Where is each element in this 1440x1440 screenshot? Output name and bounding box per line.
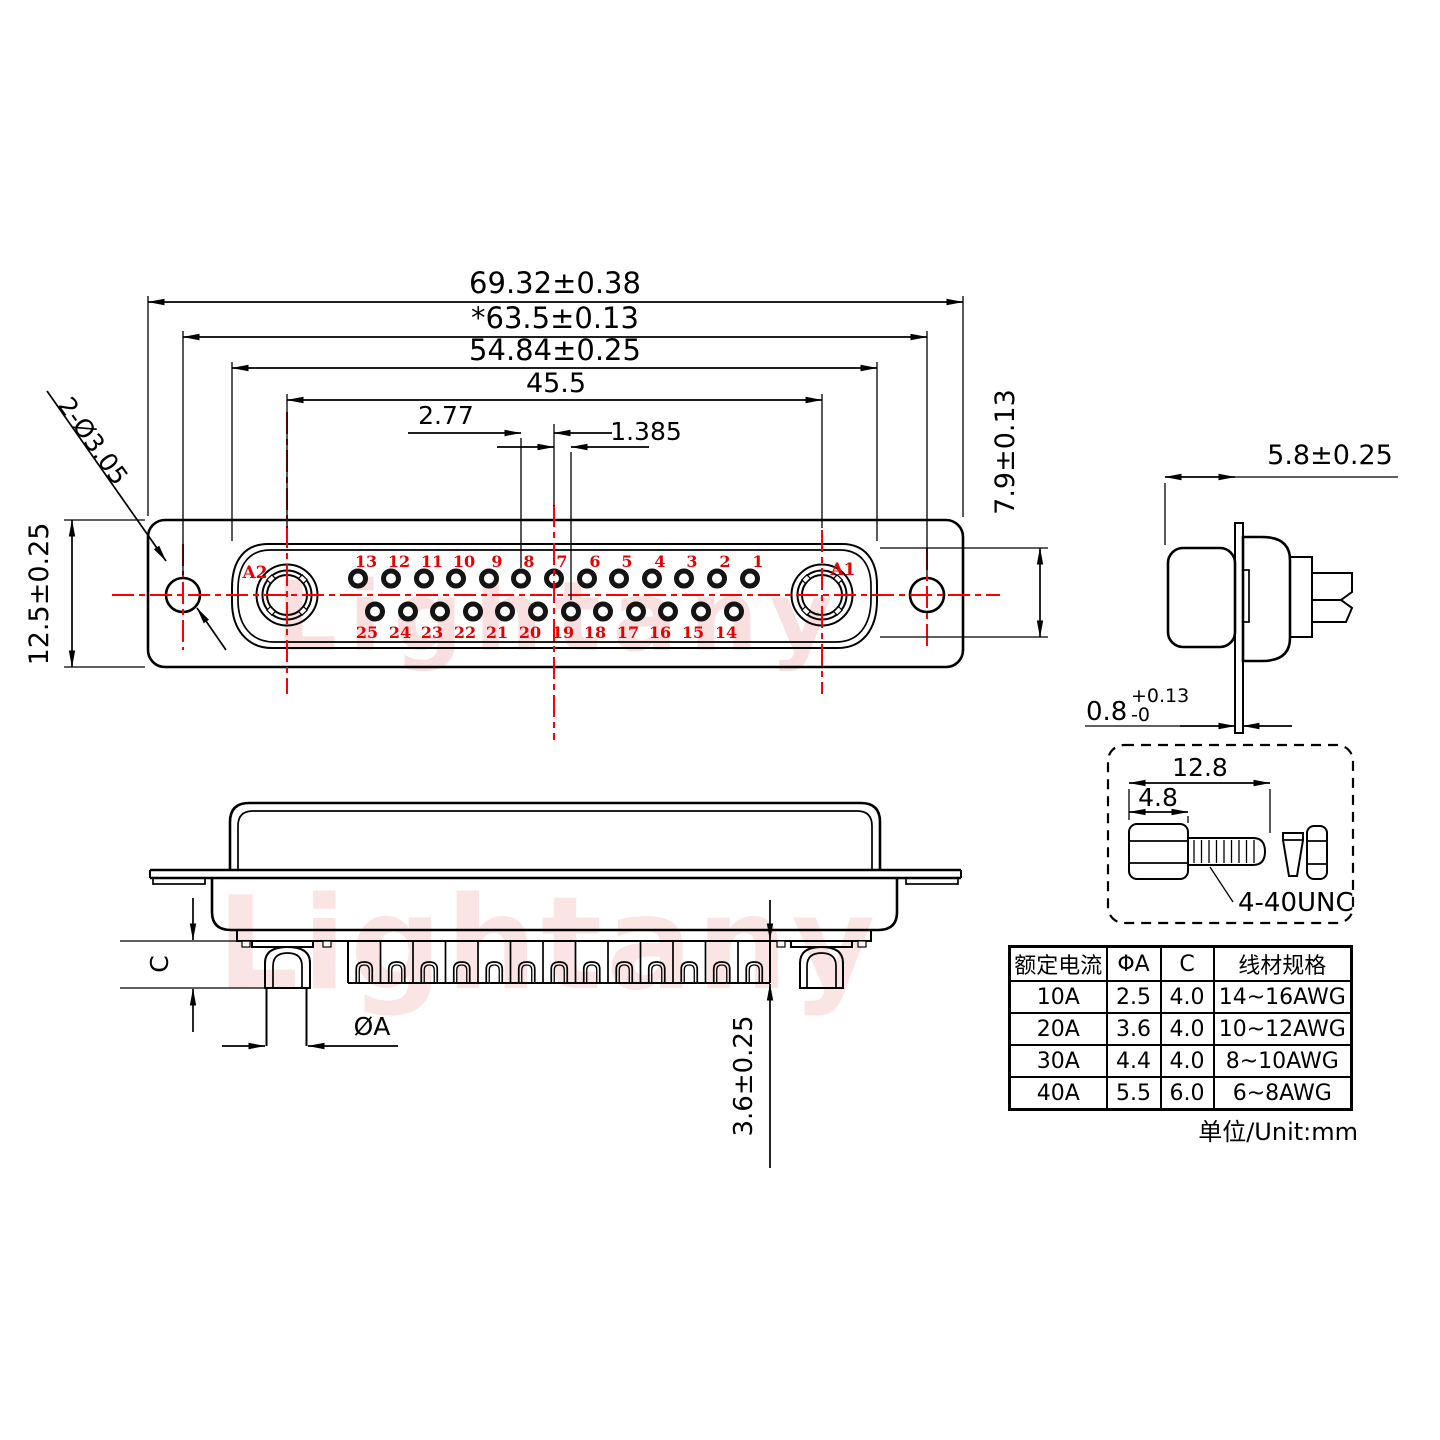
table-row: 20A3.6 4.010~12AWG <box>1010 1013 1352 1045</box>
hood-inner <box>238 811 872 870</box>
dim-front-depth: 5.8±0.25 <box>1267 440 1393 471</box>
svg-text:1: 1 <box>752 552 763 571</box>
dim-tail-diameter: ØA <box>354 1012 391 1041</box>
ferrule-piece <box>1307 826 1327 879</box>
terminal-lower <box>1312 600 1352 622</box>
rear-shell <box>1243 537 1290 661</box>
terminal-upper <box>1312 573 1352 600</box>
header-phi-a: ΦA <box>1107 947 1161 982</box>
hood-outer <box>230 803 880 870</box>
dim-barrel-length: C <box>145 955 174 972</box>
unit-note: 单位/Unit:mm <box>1100 1112 1358 1147</box>
screw-detail: 12.8 4.8 4-40UNC <box>1108 745 1354 923</box>
svg-text:5: 5 <box>621 552 632 571</box>
dim-pin-pitch: 2.77 <box>418 401 474 430</box>
coax-label-a2: A2 <box>241 563 267 583</box>
dim-screw-overall: 12.8 <box>1172 753 1228 782</box>
dim-cutout-width: 54.84±0.25 <box>469 333 641 367</box>
technical-drawing: Lightany Lightany 13 12 11 <box>0 0 1440 1440</box>
dim-row-offset: 1.385 <box>610 417 682 446</box>
screw-head <box>1129 824 1188 879</box>
thread-spec-label: 4-40UNC <box>1238 888 1354 918</box>
dim-mount-span: *63.5±0.13 <box>471 301 639 335</box>
svg-text:4: 4 <box>654 552 665 571</box>
dim-pin-protrusion: 3.6±0.25 <box>729 1015 759 1136</box>
coax-label-a1: A1 <box>829 560 855 580</box>
header-c: C <box>1161 947 1214 982</box>
svg-text:6: 6 <box>589 552 600 571</box>
side-view: 5.8±0.25 0.8 +0.13 -0 <box>1085 440 1398 733</box>
svg-text:2: 2 <box>719 552 730 571</box>
svg-text:13: 13 <box>355 552 377 571</box>
svg-text:16: 16 <box>649 623 671 642</box>
dim-body-height: 12.5±0.25 <box>24 523 55 666</box>
svg-text:14: 14 <box>715 623 737 642</box>
drawing-canvas: Lightany Lightany 13 12 11 <box>0 0 1440 1440</box>
svg-text:10: 10 <box>453 552 475 571</box>
svg-text:15: 15 <box>682 623 704 642</box>
dim-screw-head: 4.8 <box>1138 783 1178 812</box>
screw-threads <box>1194 840 1254 863</box>
dim-overall-width: 69.32±0.38 <box>469 266 641 300</box>
svg-text:24: 24 <box>389 623 411 642</box>
dim-panel-tol-lower: -0 <box>1131 704 1150 726</box>
front-shell <box>1168 548 1235 647</box>
dim-coax-span: 45.5 <box>526 368 586 399</box>
dim-panel-thickness: 0.8 <box>1086 697 1127 727</box>
svg-text:9: 9 <box>491 552 502 571</box>
svg-text:3: 3 <box>686 552 697 571</box>
table-row: 10A2.5 4.014~16AWG <box>1010 981 1352 1013</box>
svg-text:25: 25 <box>356 623 378 642</box>
svg-text:11: 11 <box>421 552 443 571</box>
svg-text:22: 22 <box>454 623 476 642</box>
table-row: 40A5.5 6.06~8AWG <box>1010 1077 1352 1110</box>
dim-mount-holes: 2-Ø3.05 <box>52 392 134 490</box>
header-wire-gauge: 线材规格 <box>1214 947 1352 982</box>
svg-text:17: 17 <box>617 623 639 642</box>
svg-text:23: 23 <box>421 623 443 642</box>
header-rated-current: 额定电流 <box>1010 947 1107 982</box>
svg-text:8: 8 <box>523 552 534 571</box>
svg-text:18: 18 <box>584 623 606 642</box>
svg-text:21: 21 <box>486 623 508 642</box>
spec-table: 额定电流 ΦA C 线材规格 10A2.5 4.014~16AWG 20A3.6… <box>1008 945 1353 1111</box>
svg-text:12: 12 <box>388 552 410 571</box>
terminal-base <box>1290 557 1312 637</box>
dim-cutout-height: 7.9±0.13 <box>990 389 1021 515</box>
table-header-row: 额定电流 ΦA C 线材规格 <box>1010 947 1352 982</box>
svg-text:20: 20 <box>519 623 541 642</box>
table-row: 30A4.4 4.08~10AWG <box>1010 1045 1352 1077</box>
svg-text:7: 7 <box>556 552 567 571</box>
svg-text:19: 19 <box>552 623 574 642</box>
